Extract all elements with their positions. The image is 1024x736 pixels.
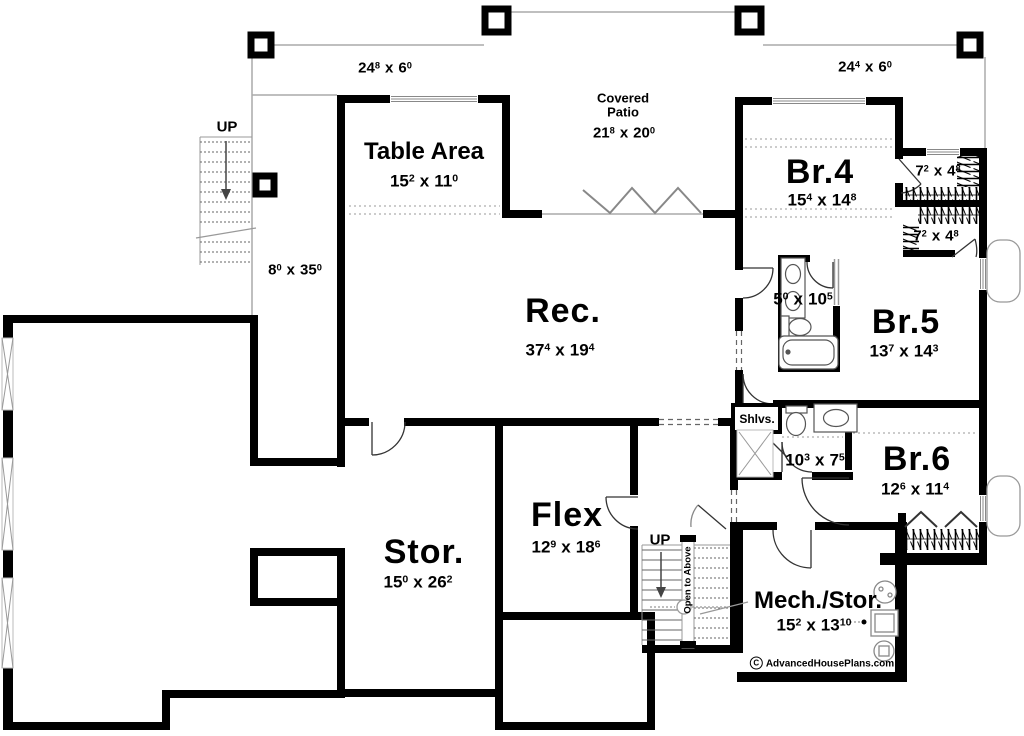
- room-dim-br4: 154x148: [787, 192, 856, 209]
- room-dim-mech-stor: 152x1310: [777, 617, 852, 634]
- room-label-mech-stor: Mech./Stor.: [754, 589, 882, 613]
- room-label-rec: Rec.: [525, 294, 601, 328]
- room-label-table-area: Table Area: [364, 140, 484, 164]
- deck-right-dimension: 244x60: [838, 60, 892, 75]
- room-label-stor: Stor.: [384, 535, 465, 569]
- patio-screen: [583, 188, 701, 213]
- room-dim-flex: 129x186: [531, 539, 600, 556]
- shelves-label: Shlvs.: [739, 413, 774, 425]
- floorplan-page: 248x60 244x60 80x350 UP Table Area 152x1…: [0, 0, 1024, 736]
- up-label-left-stairs: UP: [217, 120, 238, 135]
- dashed-openings: [659, 331, 742, 522]
- room-dim-br6: 126x114: [881, 481, 949, 498]
- room-dim-br5-closet: 72x48: [913, 229, 958, 244]
- room-dim-br5: 137x143: [869, 343, 938, 360]
- bath-fixtures: [779, 258, 857, 436]
- deck-left-dimension: 248x60: [358, 61, 412, 76]
- deck-structure: [252, 12, 985, 315]
- floorplan-drawing: [0, 0, 1024, 736]
- room-dim-table-area: 152x110: [390, 173, 458, 190]
- copyright-branding: CAdvancedHousePlans.com: [750, 657, 894, 670]
- window-wells: [987, 240, 1020, 536]
- room-dim-covered-patio: 218x200: [593, 126, 655, 141]
- open-to-above-label: Open to Above: [683, 546, 693, 613]
- shower: [737, 430, 773, 477]
- copyright-icon: C: [750, 657, 763, 670]
- room-dim-stor: 150x262: [383, 574, 452, 591]
- basement-window-braces: [2, 338, 13, 668]
- room-label-br4: Br.4: [786, 155, 854, 189]
- room-dim-br4-closet: 72x48: [915, 164, 960, 179]
- room-dim-rec: 374x194: [525, 342, 594, 359]
- room-label-flex: Flex: [531, 498, 603, 532]
- room-dim-main-bath: 50x105: [773, 291, 833, 308]
- left-exterior-stairs: [196, 137, 256, 265]
- room-label-br5: Br.5: [872, 305, 940, 339]
- side-patio-dimension: 80x350: [268, 263, 322, 278]
- doors: [372, 159, 977, 568]
- room-dim-hall-bath: 103x75: [785, 452, 845, 469]
- room-label-covered-patio-line1: Covered: [597, 92, 649, 105]
- room-label-covered-patio-line2: Patio: [607, 106, 639, 119]
- up-label-center-stairs: UP: [650, 533, 671, 548]
- room-label-br6: Br.6: [883, 442, 951, 476]
